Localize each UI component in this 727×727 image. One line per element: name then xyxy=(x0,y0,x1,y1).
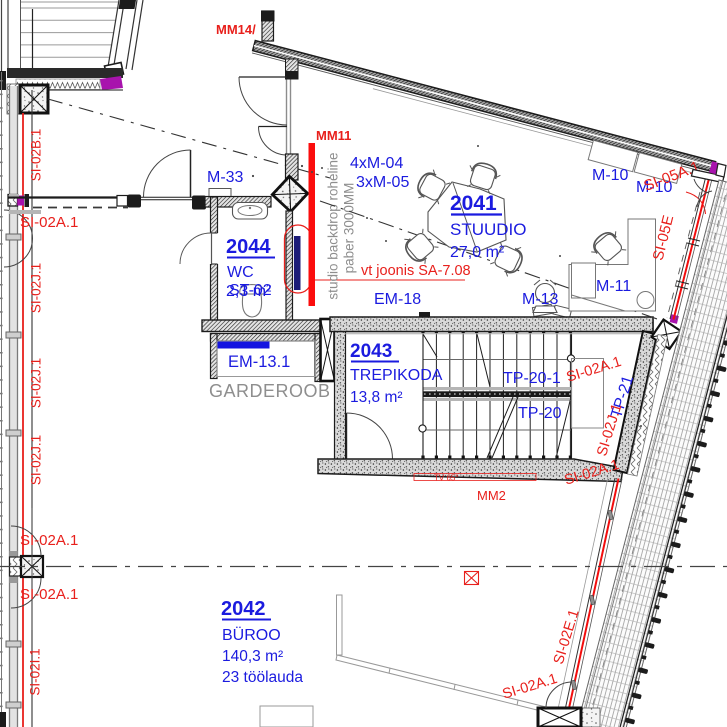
svg-text:SI-02A.1: SI-02A.1 xyxy=(20,214,78,231)
svg-text:SI-02I.1: SI-02I.1 xyxy=(28,648,43,695)
svg-text:MM14/: MM14/ xyxy=(216,22,256,37)
svg-text:2044: 2044 xyxy=(226,236,271,258)
svg-text:EM-13.1: EM-13.1 xyxy=(228,353,290,371)
svg-text:SI-02J.1: SI-02J.1 xyxy=(29,263,44,313)
svg-text:M-11: M-11 xyxy=(596,278,631,295)
svg-text:STUUDIO: STUUDIO xyxy=(450,220,527,239)
svg-text:2042: 2042 xyxy=(221,598,266,620)
svg-text:ST-02: ST-02 xyxy=(229,282,272,299)
svg-text:SI-02B.1: SI-02B.1 xyxy=(29,129,44,182)
svg-text:27,0 m²: 27,0 m² xyxy=(450,244,505,261)
svg-text:TP-20-1: TP-20-1 xyxy=(503,370,561,387)
svg-text:BÜROO: BÜROO xyxy=(222,626,281,644)
svg-text:2043: 2043 xyxy=(350,341,392,362)
svg-text:M-10: M-10 xyxy=(592,167,629,184)
svg-text:TREPIKODA: TREPIKODA xyxy=(350,367,443,384)
svg-text:SI-02J.1: SI-02J.1 xyxy=(29,358,44,408)
svg-text:vt joonis SA-7.08: vt joonis SA-7.08 xyxy=(361,263,471,279)
svg-text:paber 3000MM: paber 3000MM xyxy=(342,183,357,274)
svg-text:4xM-04: 4xM-04 xyxy=(350,155,403,172)
svg-text:13,8 m²: 13,8 m² xyxy=(350,389,403,406)
svg-text:GARDEROOB: GARDEROOB xyxy=(209,381,331,401)
svg-text:3xM-05: 3xM-05 xyxy=(356,174,409,191)
svg-text:SI-02A.1: SI-02A.1 xyxy=(20,586,78,603)
svg-text:M-33: M-33 xyxy=(207,169,244,186)
svg-text:EM-18: EM-18 xyxy=(374,291,421,308)
svg-text:WC: WC xyxy=(227,264,254,281)
svg-text:23 töölauda: 23 töölauda xyxy=(222,669,303,686)
svg-text:SI-02A.1: SI-02A.1 xyxy=(20,532,78,549)
svg-text:TV 65°: TV 65° xyxy=(434,474,459,483)
svg-text:MM2: MM2 xyxy=(477,488,506,503)
svg-text:studio backdrop roheline: studio backdrop roheline xyxy=(326,152,341,299)
svg-text:M-13: M-13 xyxy=(522,291,559,308)
svg-text:2041: 2041 xyxy=(450,192,497,215)
svg-text:TP-20: TP-20 xyxy=(518,405,562,422)
svg-text:140,3 m²: 140,3 m² xyxy=(222,648,283,665)
svg-text:SI-02J.1: SI-02J.1 xyxy=(29,435,44,485)
svg-text:MM11: MM11 xyxy=(316,128,351,143)
